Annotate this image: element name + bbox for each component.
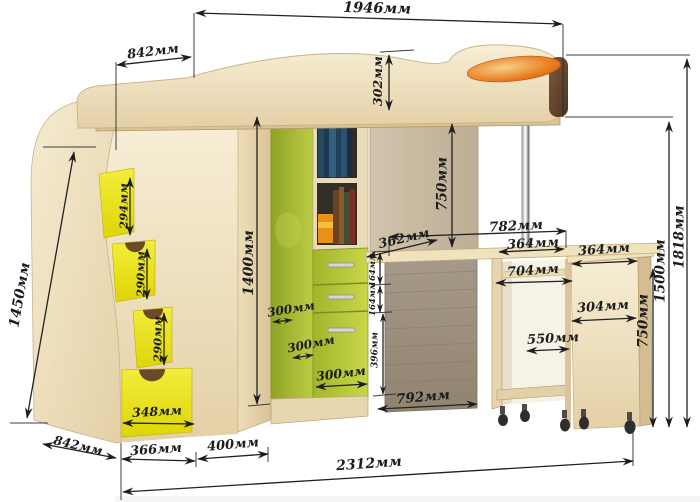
dim-label-lower-front-height: 396мм — [372, 332, 381, 368]
dim-label-total-top-width: 1946мм — [343, 1, 411, 17]
drawer-handle-1 — [328, 263, 354, 267]
dimline-base-wardrobe-width — [198, 454, 268, 459]
dim-label-base-stairs-width: 366мм — [130, 442, 183, 459]
dim-label-rail-height: 302мм — [372, 56, 385, 106]
furniture-dimension-diagram: 1946мм 842мм 302мм 1450мм 294мм 290мм 29… — [0, 0, 700, 502]
dim-label-drawer-2-height: 164мм — [369, 282, 378, 316]
dim-label-cabinet-front-width: 304мм — [577, 299, 630, 316]
dim-label-roll-desk-clearance: 550мм — [527, 331, 579, 347]
caster — [498, 406, 508, 426]
wardrobe-door — [271, 110, 313, 404]
watermark-strip — [115, 496, 700, 502]
drawer-handle-2 — [328, 295, 354, 299]
door-decal — [275, 212, 301, 248]
dim-label-desk-half-width: 364мм — [507, 236, 559, 252]
open-cabinet-left-wall — [492, 258, 502, 409]
dim-label-under-bed-width: 782мм — [489, 219, 543, 235]
dim-label-right-total-height: 1818мм — [673, 205, 687, 268]
dim-label-step-3: 290мм — [152, 316, 164, 362]
dim-label-desk-level-height: 1500мм — [654, 239, 668, 302]
dim-label-step-2: 290мм — [135, 251, 147, 297]
dim-label-step-drawer: 348мм — [132, 404, 182, 419]
dim-label-cabinet-height: 750мм — [637, 294, 651, 348]
wardrobe-base — [271, 396, 368, 424]
dimline-base-stairs-width — [122, 459, 195, 461]
drawer-handle-3 — [328, 328, 355, 332]
dim-label-under-bed-clearance: 750мм — [436, 157, 450, 211]
cabinet-front — [571, 258, 640, 429]
dim-label-roll-cabinet-top: 364мм — [578, 242, 631, 259]
dim-label-wardrobe-height: 1400мм — [242, 230, 256, 296]
caster — [520, 404, 530, 422]
dim-label-roll-desk-inner: 704мм — [507, 263, 560, 280]
dim-label-step-1: 294мм — [118, 183, 130, 229]
orange-box — [318, 214, 333, 243]
